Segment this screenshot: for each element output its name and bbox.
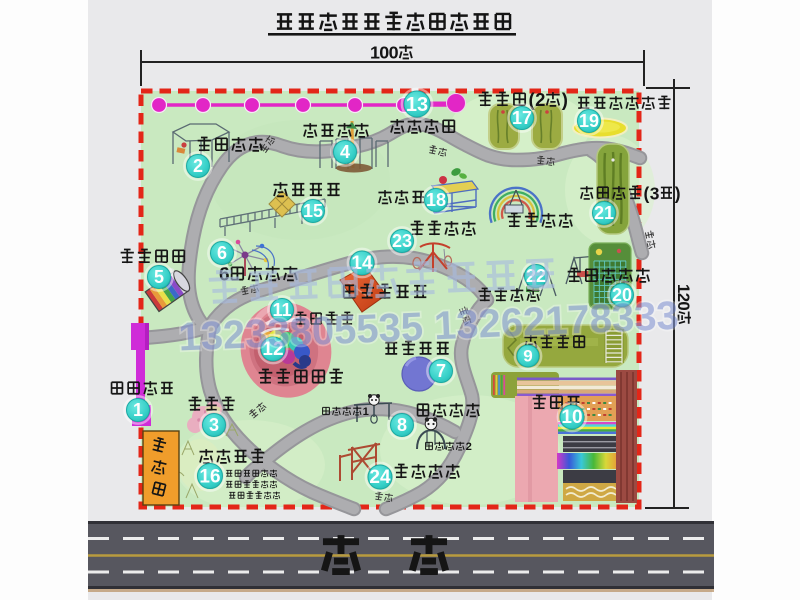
svg-text:24: 24 [369, 467, 391, 488]
svg-text:9: 9 [523, 347, 532, 366]
svg-text:8: 8 [397, 415, 407, 435]
svg-text:4: 4 [340, 142, 350, 162]
svg-text:2: 2 [193, 156, 203, 176]
svg-text:0: 0 [389, 43, 399, 63]
svg-text:19: 19 [579, 111, 599, 131]
svg-text:16: 16 [199, 467, 220, 488]
svg-text:1: 1 [133, 400, 143, 420]
svg-text:13: 13 [406, 94, 428, 116]
svg-text:5: 5 [154, 267, 164, 287]
svg-text:18: 18 [426, 190, 446, 210]
svg-text:23: 23 [392, 231, 412, 251]
svg-text:21: 21 [594, 203, 614, 223]
svg-text:2: 2 [535, 89, 545, 110]
svg-text:2: 2 [466, 441, 472, 453]
svg-text:3: 3 [209, 415, 219, 435]
svg-text:10: 10 [561, 407, 582, 428]
svg-text:): ) [562, 89, 568, 110]
svg-text:(: ( [644, 183, 650, 203]
svg-text:): ) [675, 183, 681, 203]
svg-text:17: 17 [512, 108, 532, 128]
svg-text:7: 7 [436, 361, 446, 381]
svg-text:6: 6 [217, 243, 227, 263]
svg-text:15: 15 [303, 201, 323, 221]
svg-text:1: 1 [363, 406, 369, 418]
svg-text:3: 3 [650, 183, 660, 203]
